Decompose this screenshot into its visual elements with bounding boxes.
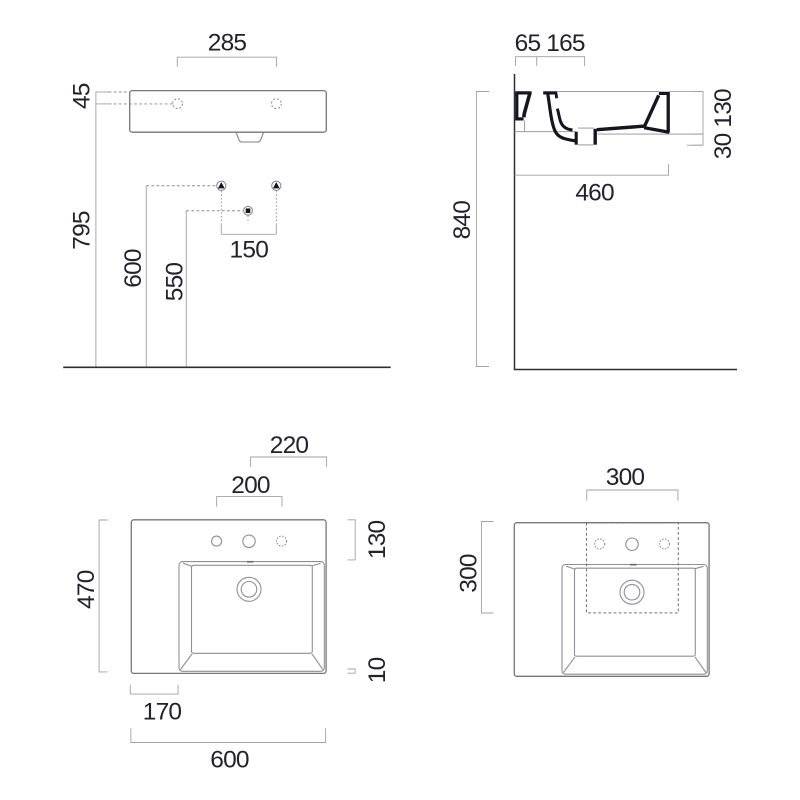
svg-text:600: 600 [120, 249, 147, 288]
svg-text:840: 840 [449, 201, 476, 240]
svg-text:150: 150 [230, 237, 269, 264]
svg-text:550: 550 [162, 263, 189, 302]
svg-text:220: 220 [270, 432, 309, 459]
svg-text:285: 285 [208, 30, 247, 57]
svg-text:300: 300 [456, 554, 483, 593]
svg-text:45: 45 [68, 83, 95, 109]
svg-text:10: 10 [364, 657, 391, 683]
svg-text:30 130: 30 130 [710, 89, 737, 159]
svg-text:795: 795 [69, 211, 96, 250]
svg-text:65 165: 65 165 [515, 30, 585, 57]
svg-text:600: 600 [210, 747, 249, 774]
svg-text:460: 460 [575, 179, 614, 206]
svg-text:300: 300 [606, 464, 645, 491]
svg-text:200: 200 [231, 472, 270, 499]
svg-text:130: 130 [364, 520, 391, 559]
svg-text:470: 470 [73, 570, 100, 609]
svg-text:170: 170 [143, 699, 182, 726]
